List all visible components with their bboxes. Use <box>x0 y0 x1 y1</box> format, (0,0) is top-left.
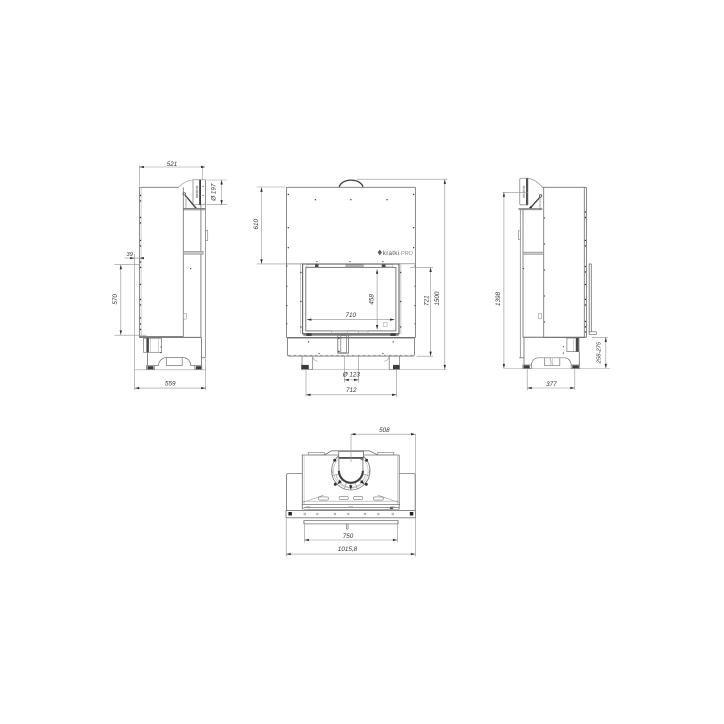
svg-text:1015,8: 1015,8 <box>338 546 358 553</box>
svg-text:610: 610 <box>253 218 260 229</box>
svg-text:559: 559 <box>165 381 176 388</box>
svg-text:721: 721 <box>424 295 431 306</box>
svg-text:712: 712 <box>346 387 357 394</box>
svg-text:258-275: 258-275 <box>596 341 602 364</box>
svg-text:39: 39 <box>126 252 133 258</box>
svg-text:710: 710 <box>346 312 357 319</box>
svg-text:458: 458 <box>368 294 375 305</box>
svg-text:1398: 1398 <box>495 292 502 307</box>
svg-text:377: 377 <box>546 381 557 388</box>
svg-text:508: 508 <box>379 427 390 434</box>
svg-text:kratki: kratki <box>383 250 400 257</box>
svg-text:PRO: PRO <box>401 251 414 257</box>
svg-text:Ø 123: Ø 123 <box>342 372 361 379</box>
svg-text:750: 750 <box>343 533 354 540</box>
svg-text:Ø 197: Ø 197 <box>210 183 217 202</box>
svg-text:570: 570 <box>112 294 119 305</box>
svg-text:521: 521 <box>167 161 178 168</box>
svg-text:1500: 1500 <box>434 291 441 306</box>
